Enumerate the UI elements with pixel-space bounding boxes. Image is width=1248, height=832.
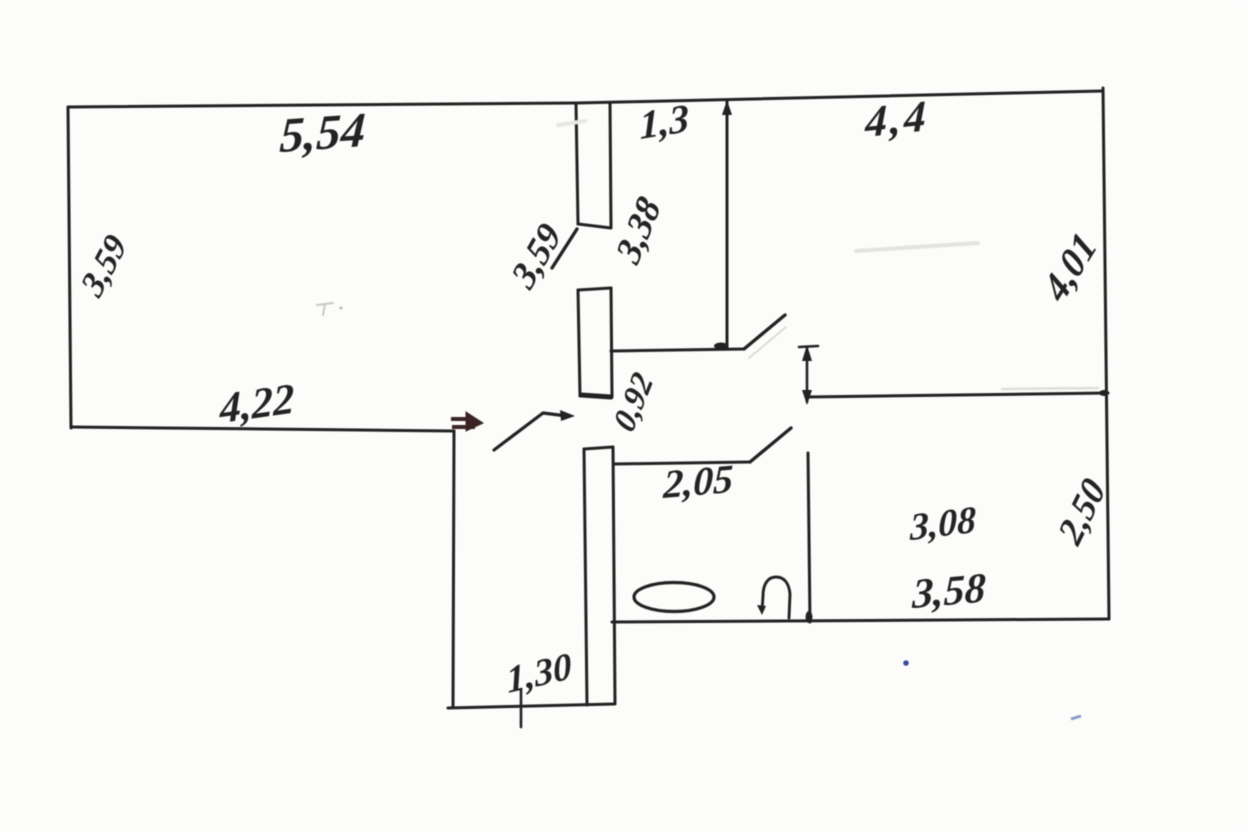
svg-text:2,05: 2,05 xyxy=(662,456,734,507)
svg-text:3,38: 3,38 xyxy=(609,190,670,271)
svg-text:2,50: 2,50 xyxy=(1051,471,1114,552)
svg-text:4,22: 4,22 xyxy=(218,375,294,433)
svg-text:3,58: 3,58 xyxy=(911,564,987,618)
svg-text:3,08: 3,08 xyxy=(909,499,976,549)
svg-text:5,54: 5,54 xyxy=(278,102,366,163)
svg-text:3,59: 3,59 xyxy=(504,216,570,298)
svg-text:0,92: 0,92 xyxy=(607,366,661,438)
svg-text:4,4: 4,4 xyxy=(864,91,929,147)
svg-text:1,3: 1,3 xyxy=(639,95,690,148)
svg-text:3,59: 3,59 xyxy=(73,227,134,304)
svg-text:1,30: 1,30 xyxy=(505,645,574,702)
svg-text:4,01: 4,01 xyxy=(1035,225,1105,311)
